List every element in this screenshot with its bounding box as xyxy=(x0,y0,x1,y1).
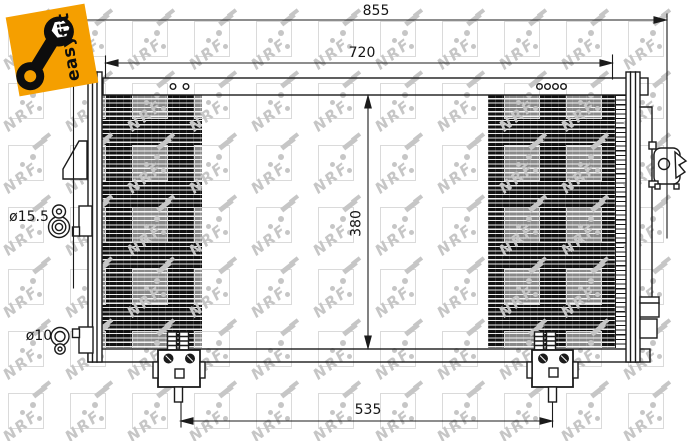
upper-right-bracket xyxy=(640,107,686,297)
lower-left-bracket xyxy=(153,332,205,402)
right-side-plate xyxy=(626,72,640,362)
lower-right-bracket xyxy=(527,332,578,402)
dimension-label-port-diameter-lower: ø10 xyxy=(24,329,54,344)
dimension-label-380: 380 xyxy=(350,202,365,246)
dimension-label-535: 535 xyxy=(346,403,390,418)
upper-left-bracket xyxy=(63,141,87,179)
right-connector-blocks xyxy=(640,297,659,338)
condenser-technical-drawing: NRFNRFNRFNRFNRFNRFNRFNRFNRFNRFNRFNRFNRFN… xyxy=(0,0,700,441)
port-fitting-upper xyxy=(49,205,93,238)
top-tank xyxy=(103,78,648,95)
dimension-label-855: 855 xyxy=(354,4,398,19)
port-fitting-lower xyxy=(51,327,93,354)
easyfit-badge: easyfit xyxy=(6,4,99,97)
dimension-label-port-diameter-upper: ø15.5 xyxy=(8,210,50,225)
dimension-label-720: 720 xyxy=(340,46,384,61)
dimension-380 xyxy=(365,96,371,348)
